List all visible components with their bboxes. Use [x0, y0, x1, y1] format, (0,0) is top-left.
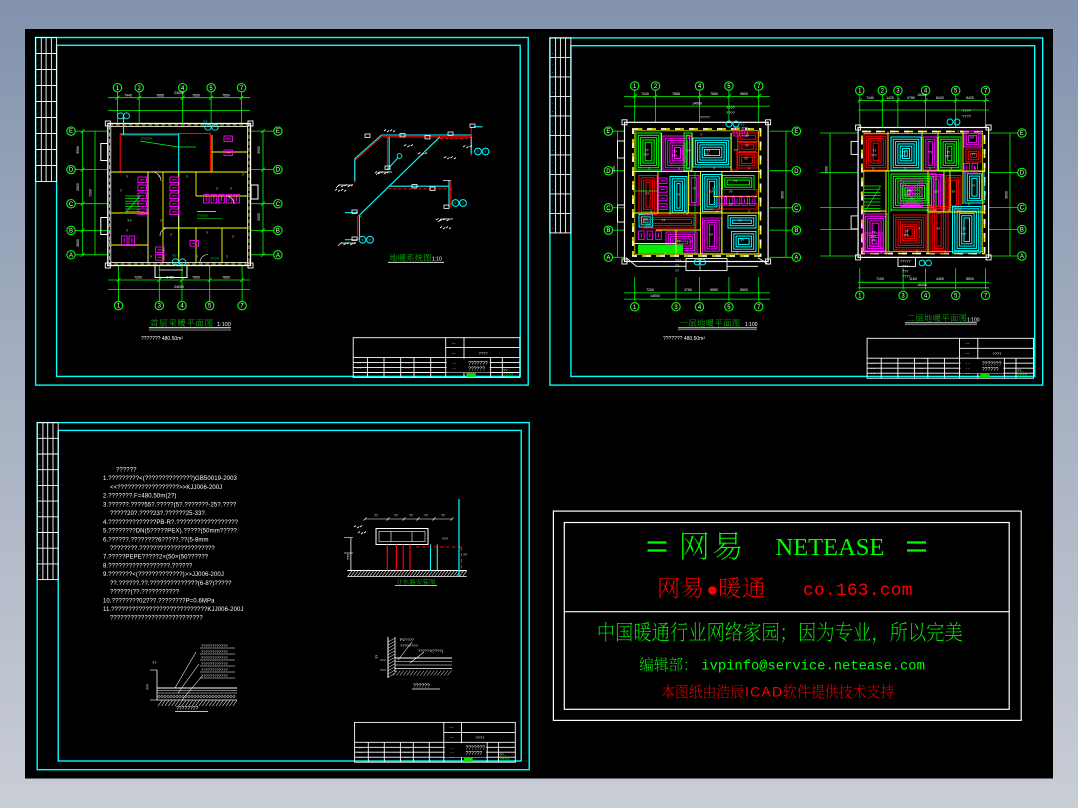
svg-text:??????(????): ??????(????): [418, 648, 444, 653]
svg-text:??: ??: [744, 157, 748, 161]
svg-text:− −: − −: [919, 367, 924, 371]
svg-text:11.???????????????????????????: 11.????????????????????????????KJJ006-20…: [103, 607, 244, 613]
svg-text:??????: ??????: [468, 366, 485, 372]
svg-text:???: ???: [347, 554, 351, 560]
svg-text:????: ????: [1017, 373, 1028, 378]
svg-text:·: ·: [38, 121, 39, 126]
svg-text:NETEASE: NETEASE: [776, 534, 885, 561]
svg-text:A: A: [276, 253, 280, 259]
svg-text:− −: − −: [405, 361, 410, 365]
svg-text:??: ??: [971, 153, 975, 157]
svg-text:?: ?: [684, 210, 686, 214]
svg-text:?: ?: [150, 255, 152, 259]
svg-text:??.??????.??.??????????????(6-: ??.??????.??.??????????????(6-8?)?????: [110, 581, 232, 587]
svg-text:− −: − −: [871, 367, 876, 371]
svg-text:− −: − −: [450, 755, 455, 759]
svg-text:?: ?: [880, 251, 882, 255]
svg-text:7.?????PEPE?????2×(50×(50?????: 7.?????PEPE?????2×(50×(50??????: [103, 555, 209, 561]
svg-text:7665: 7665: [156, 94, 164, 98]
svg-text:E: E: [276, 129, 280, 135]
svg-text:??: ??: [740, 239, 744, 243]
svg-text:?: ?: [700, 252, 702, 256]
svg-text:3900: 3900: [257, 146, 261, 154]
svg-text:?: ?: [742, 128, 744, 132]
svg-text:− −: − −: [871, 371, 876, 375]
svg-text:3300: 3300: [257, 213, 261, 221]
svg-text:?: ?: [226, 255, 228, 259]
svg-text:− −: − −: [405, 746, 410, 750]
svg-text:7650: 7650: [222, 276, 230, 280]
svg-text:− −: − −: [405, 751, 410, 755]
svg-text:?: ?: [716, 210, 718, 214]
svg-text:?: ?: [868, 130, 870, 134]
svg-text:?: ?: [126, 175, 128, 179]
svg-text:5550: 5550: [710, 288, 718, 292]
svg-text:·: ·: [552, 199, 553, 204]
svg-text:??..: ??..: [499, 752, 506, 757]
svg-text:7200: 7200: [89, 189, 93, 197]
svg-text:??????: ??????: [982, 367, 999, 373]
svg-text:−−: −−: [965, 352, 969, 356]
svg-text:?: ?: [713, 167, 715, 171]
svg-text:E: E: [1020, 131, 1024, 137]
svg-text:?: ?: [748, 210, 750, 214]
svg-text:??: ??: [738, 219, 742, 223]
svg-text:????????????: ????????????: [201, 649, 228, 654]
svg-text:3600: 3600: [1005, 191, 1009, 199]
svg-text:??: ??: [709, 233, 713, 237]
svg-text:·: ·: [38, 89, 39, 94]
svg-text:??: ??: [375, 655, 379, 659]
svg-text:PZ????: PZ????: [400, 637, 415, 642]
svg-text:C: C: [69, 202, 74, 208]
svg-text:??????? 480.50m²: ??????? 480.50m²: [663, 336, 705, 342]
svg-text:?????: ?????: [900, 260, 911, 264]
svg-text:1.?????????<(??????????????)GB: 1.?????????<(??????????????)GB50019-2003: [103, 476, 238, 482]
svg-text:???: ???: [902, 265, 908, 269]
svg-text:??: ??: [928, 151, 932, 155]
svg-text:????????????: ????????????: [201, 667, 228, 672]
svg-text:·: ·: [552, 121, 553, 126]
svg-text:?: ?: [712, 187, 714, 191]
svg-text:?: ?: [944, 251, 946, 255]
svg-text:8420: 8420: [966, 96, 974, 100]
svg-text:·: ·: [552, 43, 553, 48]
svg-text:− −: − −: [966, 362, 971, 366]
svg-text:????: ????: [726, 110, 736, 115]
svg-text:??: ??: [951, 190, 955, 194]
svg-text:????: ????: [499, 757, 510, 762]
svg-text:B: B: [69, 229, 73, 235]
svg-text:·: ·: [39, 567, 40, 572]
svg-text:5500: 5500: [966, 277, 974, 281]
svg-text:''''': ''''': [409, 741, 413, 746]
svg-text:3600: 3600: [781, 191, 785, 199]
svg-text:·: ·: [38, 57, 39, 62]
svg-text:4.??????????????PB-R?.????????: 4.??????????????PB-R?.??????????????????: [103, 520, 239, 526]
svg-text:−−: −−: [452, 342, 456, 346]
svg-text:3300: 3300: [76, 183, 80, 191]
svg-text:???: ???: [672, 154, 678, 158]
svg-text:3600: 3600: [76, 239, 80, 247]
svg-text:?: ?: [758, 197, 760, 201]
svg-text:?: ?: [186, 175, 188, 179]
svg-text:D: D: [606, 169, 611, 175]
svg-text:?: ?: [242, 173, 244, 177]
svg-text:????: ????: [475, 735, 485, 740]
svg-text:C: C: [276, 202, 281, 208]
svg-text:?: ?: [120, 189, 122, 193]
svg-text:???: ???: [945, 155, 951, 159]
svg-text:−−: −−: [449, 726, 453, 730]
svg-text:7440: 7440: [641, 92, 649, 96]
svg-text:3.??????.????55?.?????(5?.????: 3.??????.????55?.?????(5?.???????-25?.??…: [103, 502, 237, 508]
svg-text:??..: ??..: [1017, 368, 1024, 373]
svg-text:??: ??: [972, 184, 976, 188]
svg-text:6.??????.????????6?????.??(5-8: 6.??????.????????6?????.??(5-8mm: [103, 537, 209, 543]
svg-text:7650: 7650: [222, 94, 230, 98]
svg-text:8.??????????????????.??????: 8.??????????????????.??????: [103, 563, 193, 569]
svg-text:D: D: [69, 168, 74, 174]
svg-text:?: ?: [678, 167, 680, 171]
svg-text:1:100: 1:100: [745, 322, 758, 328]
svg-text:??????: ??????: [413, 684, 430, 690]
svg-text:− −: − −: [966, 371, 971, 375]
svg-text:14000: 14000: [650, 294, 660, 298]
svg-text:− −: − −: [919, 362, 924, 366]
svg-text:<<??????????????????>>KJJ006-2: <<??????????????????>>KJJ006-200J: [110, 485, 222, 491]
svg-text:??: ??: [872, 231, 876, 235]
svg-text:?: ?: [872, 167, 874, 171]
svg-text:???????????????????????????: ???????????????????????????: [110, 616, 203, 622]
svg-text:7650: 7650: [192, 276, 200, 280]
svg-text:??????: ??????: [466, 751, 483, 757]
svg-text:·: ·: [552, 62, 553, 67]
svg-text:?: ?: [170, 233, 172, 237]
svg-text:− −: − −: [357, 361, 362, 365]
svg-text:???: ???: [871, 153, 877, 157]
svg-text:B: B: [606, 228, 610, 234]
svg-text:A: A: [794, 255, 798, 261]
svg-text:??: ??: [963, 227, 967, 231]
svg-text:????: ????: [503, 372, 514, 377]
svg-text:·: ·: [552, 101, 553, 106]
svg-text:?????: ?????: [141, 136, 153, 141]
svg-text:???: ???: [905, 193, 911, 197]
svg-text:0780: 0780: [907, 96, 915, 100]
svg-text:???: ???: [675, 259, 681, 263]
svg-text:1:10: 1:10: [432, 257, 442, 263]
svg-text:?: ?: [918, 227, 920, 231]
svg-text:?: ?: [126, 229, 128, 233]
svg-text:?: ?: [206, 231, 208, 235]
svg-text:·: ·: [39, 426, 40, 431]
svg-text:????????????: ????????????: [201, 661, 228, 666]
svg-text:??: ??: [970, 136, 974, 140]
svg-text:− −: − −: [357, 371, 362, 375]
svg-text:??: ??: [127, 218, 132, 223]
svg-text:??????: ??????: [116, 468, 137, 474]
svg-text:ivpinfo@service.netease.com: ivpinfo@service.netease.com: [701, 659, 925, 675]
svg-text:7440: 7440: [866, 96, 874, 100]
svg-text:????: ????: [726, 105, 736, 110]
svg-text:?: ?: [929, 167, 931, 171]
svg-text:??: ??: [662, 219, 666, 223]
svg-text:??: ??: [645, 192, 649, 196]
svg-text:7665: 7665: [672, 92, 680, 96]
svg-text:D: D: [1020, 171, 1025, 177]
svg-text:?: ?: [230, 187, 232, 191]
svg-text:1:100: 1:100: [217, 322, 231, 328]
svg-text:?: ?: [947, 209, 949, 213]
svg-text:??: ??: [740, 122, 745, 127]
svg-text:·: ·: [39, 457, 40, 462]
svg-text:??: ??: [745, 134, 749, 138]
svg-text:·: ·: [39, 551, 40, 556]
svg-text:??: ??: [374, 514, 378, 518]
svg-text:?: ?: [916, 250, 918, 254]
svg-text:7200: 7200: [612, 166, 616, 174]
svg-text:− −: − −: [358, 755, 363, 759]
svg-text:??: ??: [687, 149, 691, 153]
svg-text:????: ????: [962, 108, 972, 113]
svg-text:?: ?: [904, 167, 906, 171]
svg-text:·: ·: [552, 160, 553, 165]
svg-text:????: ????: [479, 350, 489, 355]
svg-text:−−: −−: [449, 736, 453, 740]
svg-text:B: B: [276, 229, 280, 235]
svg-text:7650: 7650: [710, 92, 718, 96]
svg-text:??: ??: [693, 187, 697, 191]
svg-text:??: ??: [645, 149, 649, 153]
svg-text:?: ?: [160, 219, 162, 223]
svg-text:??: ??: [675, 269, 679, 273]
svg-text:??????(??.???????????: ??????(??.???????????: [110, 590, 180, 596]
svg-text:C: C: [606, 206, 611, 212]
svg-text:·: ·: [38, 169, 39, 174]
svg-text:?: ?: [650, 210, 652, 214]
svg-text:− −: − −: [450, 751, 455, 755]
svg-text:14000: 14000: [692, 102, 702, 106]
svg-text:·: ·: [39, 473, 40, 478]
svg-text:·: ·: [38, 41, 39, 46]
svg-text:?: ?: [736, 252, 738, 256]
svg-text:5.????????DN(5?????PEX).?????(: 5.????????DN(5?????PEX).?????(50mm?????.: [103, 529, 239, 535]
svg-text:7100: 7100: [876, 277, 884, 281]
svg-text:?????: ?????: [197, 213, 209, 218]
svg-text:co.163.com: co.163.com: [803, 581, 913, 601]
svg-text:?: ?: [690, 240, 692, 244]
svg-text:??: ??: [203, 119, 208, 124]
svg-text:·: ·: [552, 140, 553, 145]
svg-text:D: D: [794, 169, 799, 175]
svg-text:− −: − −: [357, 366, 362, 370]
svg-text:??: ??: [729, 190, 733, 194]
svg-text:E: E: [69, 129, 73, 135]
svg-text:????????????: ????????????: [201, 673, 228, 678]
svg-text:− −: − −: [452, 371, 457, 375]
svg-text:·: ·: [38, 73, 39, 78]
svg-text:−−: −−: [452, 351, 456, 355]
svg-text:??????? 480.50m²: ??????? 480.50m²: [141, 336, 183, 342]
svg-text:·: ·: [39, 441, 40, 446]
svg-text:1420: 1420: [886, 96, 894, 100]
svg-text:??: ??: [172, 253, 177, 258]
svg-text:?: ?: [957, 130, 959, 134]
svg-text:7440: 7440: [124, 94, 132, 98]
svg-text:C: C: [794, 206, 799, 212]
svg-text:????: ????: [210, 256, 220, 261]
svg-text:?: ?: [664, 252, 666, 256]
svg-text:16400: 16400: [917, 93, 927, 97]
svg-text:7200: 7200: [134, 276, 142, 280]
svg-text:B: B: [794, 228, 798, 234]
svg-text:??: ??: [934, 190, 938, 194]
svg-text:???: ???: [903, 234, 909, 238]
svg-text:?: ?: [906, 131, 908, 135]
svg-text:?????: ?????: [700, 116, 710, 120]
svg-text:3750: 3750: [684, 288, 692, 292]
svg-text:????????????: ????????????: [201, 655, 228, 660]
svg-text:?: ?: [950, 167, 952, 171]
svg-text:1150: 1150: [909, 277, 917, 281]
svg-text:− −: − −: [452, 361, 457, 365]
svg-text:7200: 7200: [825, 166, 829, 174]
svg-text:?: ?: [748, 167, 750, 171]
svg-text:ICAD: ICAD: [745, 684, 783, 700]
svg-text:??: ??: [463, 553, 467, 557]
svg-text:−−: −−: [965, 342, 969, 346]
svg-text:7200: 7200: [646, 288, 654, 292]
svg-text:·: ·: [39, 520, 40, 525]
svg-text:D: D: [276, 168, 281, 174]
svg-text:??: ??: [871, 239, 875, 243]
svg-text:− −: − −: [871, 362, 876, 366]
svg-text:4450: 4450: [936, 277, 944, 281]
svg-text:???: ???: [442, 537, 448, 541]
svg-text:????: ????: [962, 114, 972, 119]
svg-text:24000: 24000: [174, 91, 184, 95]
svg-text:????????.?????????????????????: ????????.??????????????????????: [110, 546, 215, 552]
svg-text:3900: 3900: [76, 146, 80, 154]
svg-text:9.???????<(?????????????)>>JJ0: 9.???????<(?????????????)>>JJ006-200J: [103, 572, 224, 578]
svg-text:− −: − −: [450, 746, 455, 750]
svg-text:?: ?: [232, 235, 234, 239]
svg-text:16400: 16400: [917, 283, 927, 287]
svg-text:8420: 8420: [936, 96, 944, 100]
svg-text:9800: 9800: [740, 92, 748, 96]
svg-text:???: ???: [900, 155, 906, 159]
svg-text:??: ??: [424, 514, 428, 518]
svg-text:− −: − −: [358, 751, 363, 755]
svg-text:???: ???: [146, 684, 150, 690]
svg-text:????: ????: [992, 351, 1002, 356]
svg-text:??: ??: [745, 144, 749, 148]
svg-text:− −: − −: [966, 367, 971, 371]
svg-text:?: ?: [974, 167, 976, 171]
svg-text:E: E: [794, 129, 798, 135]
svg-text:E: E: [606, 129, 610, 135]
svg-text:??: ??: [676, 193, 680, 197]
svg-text:??: ??: [644, 218, 648, 222]
svg-text:??: ??: [908, 190, 912, 194]
svg-text:·: ·: [38, 153, 39, 158]
svg-text:??: ??: [152, 660, 157, 665]
svg-text:10.????????02???.????????P=0.6: 10.????????02???.????????P=0.6MPa: [103, 598, 215, 604]
svg-text:??: ??: [441, 514, 445, 518]
svg-text:''''': ''''': [924, 357, 928, 362]
svg-text:− −: − −: [405, 371, 410, 375]
svg-text:?: ?: [890, 209, 892, 213]
svg-text:?????20?.????23?.??????25-33?.: ?????20?.????23?.??????25-33?.: [110, 511, 207, 517]
svg-text:·: ·: [39, 504, 40, 509]
svg-text:·: ·: [39, 536, 40, 541]
svg-text:A: A: [606, 255, 610, 261]
svg-text:??: ??: [394, 514, 398, 518]
svg-text:?: ?: [216, 187, 218, 191]
svg-text:5500: 5500: [740, 288, 748, 292]
svg-text:??: ??: [675, 264, 679, 268]
svg-text:A: A: [69, 253, 73, 259]
svg-text:?: ?: [648, 167, 650, 171]
svg-text:??: ??: [729, 203, 733, 207]
svg-text:B: B: [1020, 228, 1024, 234]
svg-text:???: ???: [704, 153, 710, 157]
svg-text:?: ?: [984, 192, 986, 196]
svg-text:''''': ''''': [410, 356, 414, 361]
svg-text:???: ???: [644, 153, 650, 157]
svg-text:?: ?: [860, 192, 862, 196]
svg-text:− −: − −: [358, 746, 363, 750]
svg-text:·: ·: [552, 82, 553, 87]
svg-text:·: ·: [38, 105, 39, 110]
svg-text:A: A: [1020, 254, 1024, 260]
svg-text:??: ??: [734, 180, 738, 184]
svg-text:???: ???: [961, 232, 967, 236]
svg-text:?: ?: [196, 255, 198, 259]
svg-text:??: ??: [734, 149, 738, 153]
svg-text:????????: ????????: [400, 643, 419, 648]
svg-text:?: ?: [926, 209, 928, 213]
svg-text:????????????: ????????????: [201, 643, 228, 648]
svg-text:??: ??: [677, 240, 681, 244]
svg-text:C: C: [1020, 206, 1025, 212]
svg-text:????????: ????????: [176, 706, 198, 712]
svg-text:??..: ??..: [503, 368, 510, 373]
svg-text:·: ·: [38, 137, 39, 142]
svg-text:·: ·: [552, 218, 553, 223]
svg-text:·: ·: [39, 489, 40, 494]
svg-text:·: ·: [552, 179, 553, 184]
svg-text:− −: − −: [405, 366, 410, 370]
svg-text:− −: − −: [919, 371, 924, 375]
svg-text:7650: 7650: [192, 94, 200, 98]
svg-text:2.???????.F=480.50m(2?): 2.???????.F=480.50m(2?): [103, 494, 177, 500]
svg-text:− −: − −: [405, 755, 410, 759]
svg-text:24000: 24000: [174, 285, 184, 289]
svg-text:??: ??: [409, 514, 413, 518]
svg-text:??: ??: [936, 227, 940, 231]
svg-text:?: ?: [633, 197, 635, 201]
svg-text:?: ?: [968, 203, 970, 207]
svg-text:?: ?: [700, 133, 702, 137]
svg-text:− −: − −: [452, 366, 457, 370]
svg-text:?: ?: [641, 128, 643, 132]
